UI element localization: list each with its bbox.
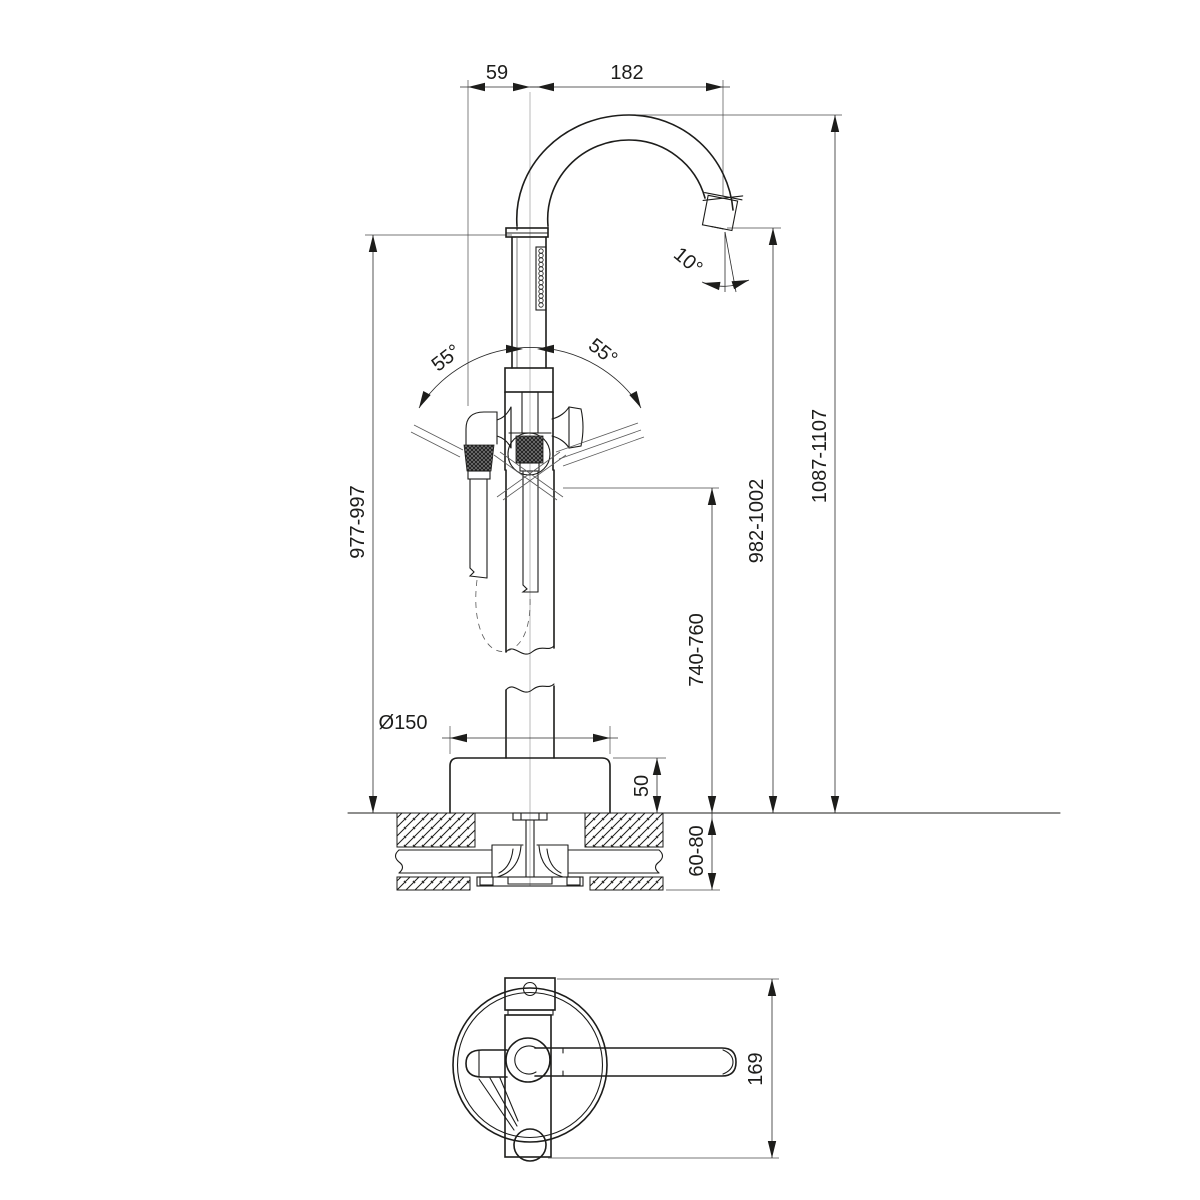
floor-hatch-right (585, 813, 663, 847)
total-height-label: 1087-1107 (809, 409, 831, 503)
lever-height-label: 740-760 (686, 613, 708, 686)
shower-holder-rail (536, 247, 546, 310)
dim-lever-height: 740-760 (563, 488, 719, 813)
front-view: 10° (347, 62, 1060, 890)
outlet-nozzle (699, 189, 743, 232)
dim-total-height: 1087-1107 (809, 115, 839, 813)
dim-overall-depth: 169 (548, 979, 779, 1158)
diverter-knurl (508, 433, 550, 475)
base-diameter-label: Ø150 (379, 712, 428, 734)
spout-offset-label: 59 (486, 62, 508, 84)
body-height-label: 977-997 (347, 485, 369, 558)
shower-grip-knurl (464, 445, 494, 471)
floor-hatch-left (397, 813, 475, 847)
overall-depth-label: 169 (745, 1052, 767, 1085)
swing-left-label: 55° (428, 340, 465, 376)
drawing-canvas: 10° (0, 0, 1200, 1200)
outlet-angle-label: 10° (669, 243, 706, 279)
floor-pipes (396, 850, 663, 873)
dim-base-height: 50 (613, 758, 666, 813)
floor-bottom-hatch-left (397, 877, 470, 890)
dim-floor-thickness: 60-80 (666, 813, 720, 890)
holder-screw-hole (524, 983, 537, 996)
lever-pivot (506, 1038, 550, 1082)
dim-spout-reach: 182 (530, 62, 730, 91)
spout-reach-label: 182 (610, 62, 643, 84)
base-circle-outer (453, 988, 607, 1142)
spout-arc (517, 115, 733, 230)
base-height-label: 50 (631, 775, 653, 797)
plan-shower-holder (466, 1050, 507, 1077)
dim-outlet-height: 982-1002 (727, 228, 781, 813)
floor-thickness-label: 60-80 (686, 825, 708, 876)
outlet-height-label: 982-1002 (746, 479, 768, 564)
dim-base-diameter: Ø150 (379, 712, 618, 754)
plan-bottom-port (514, 1129, 546, 1161)
dim-spout-offset: 59 (460, 62, 538, 91)
technical-drawing-page: 10° (0, 0, 1200, 1200)
plan-view: 169 (453, 978, 779, 1161)
swing-right-label: 55° (584, 334, 621, 370)
outlet-angle-dimension: 10° (669, 232, 750, 292)
dim-body-height: 977-997 (347, 235, 377, 813)
plan-holder-block (505, 978, 555, 1015)
temperature-handle (552, 407, 583, 448)
plan-lever (506, 1038, 736, 1082)
floor-bottom-hatch-right (590, 877, 663, 890)
